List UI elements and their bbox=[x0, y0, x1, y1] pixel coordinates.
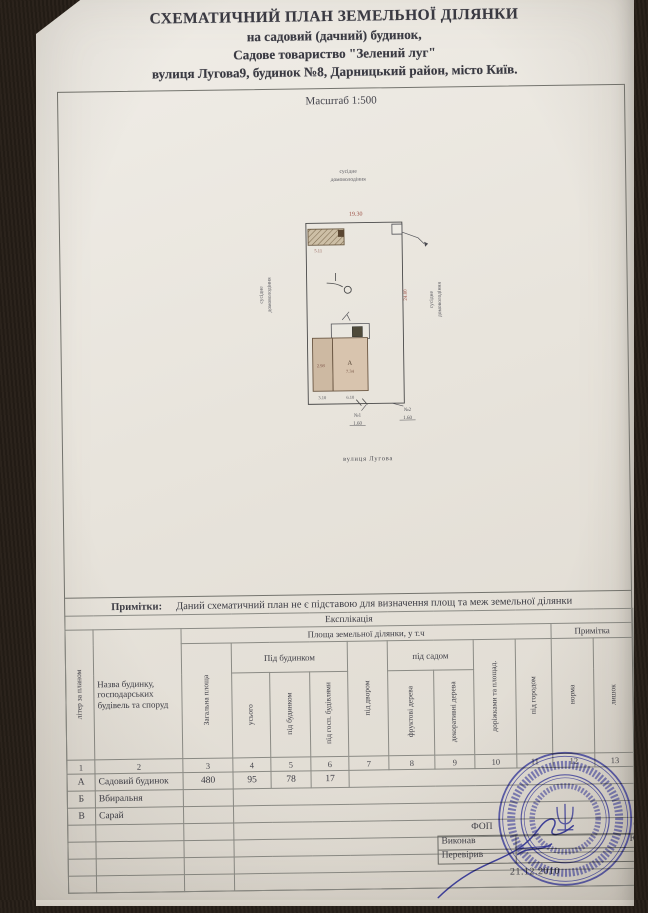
col-header-total-area: Загальна площа bbox=[181, 643, 233, 759]
row-total: 95 bbox=[233, 771, 271, 789]
gate1-leader bbox=[361, 405, 366, 411]
row-letter: В bbox=[67, 808, 95, 825]
col-number: 6 bbox=[311, 756, 349, 771]
well-connection-line bbox=[327, 273, 343, 287]
street-label: вулиця Лугова bbox=[343, 455, 393, 463]
group-header-note: Примітка bbox=[551, 622, 633, 638]
executed-name: Ю.В. bbox=[516, 834, 648, 849]
fop-name-fragment: О.В. bbox=[633, 820, 648, 832]
scanned-paper: СХЕМАТИЧНИЙ ПЛАН ЗЕМЕЛЬНОЇ ДІЛЯНКИ на са… bbox=[36, 0, 634, 906]
row-name: Сарай bbox=[95, 807, 183, 825]
neighbor-label-right-1: сусідне bbox=[429, 290, 435, 308]
gate-marks bbox=[356, 399, 367, 406]
toilet-building bbox=[392, 224, 402, 234]
col-number: 11 bbox=[517, 753, 553, 768]
row-under-house: 78 bbox=[271, 771, 311, 789]
plan-frame: Масштаб 1:500 сусідне домоволодіння 19.3… bbox=[57, 84, 636, 894]
col-number: 9 bbox=[435, 755, 475, 770]
col-header-surplus: лишок bbox=[593, 637, 635, 753]
date-stamp: 21.12.2010 bbox=[510, 865, 648, 878]
col-header-under-house: під будинком bbox=[270, 672, 311, 758]
fop-fragment: ФОП bbox=[471, 822, 493, 834]
row-letter: А bbox=[67, 774, 95, 791]
neighbor-label-top-2: домоволодіння bbox=[331, 177, 367, 183]
house-dimension: 7.34 bbox=[346, 369, 355, 374]
porch-mark bbox=[342, 312, 350, 321]
shed-dimension: 5.11 bbox=[314, 248, 322, 253]
house-letter: А bbox=[347, 360, 352, 367]
neighbor-label-right-2: домоволодіння bbox=[437, 282, 443, 318]
col-header-total: усього bbox=[232, 672, 271, 758]
row-total-area bbox=[183, 806, 233, 824]
row-total-area bbox=[183, 789, 233, 807]
porch bbox=[331, 324, 369, 340]
gate1-number: №1 bbox=[354, 413, 362, 419]
porch-dark-block bbox=[352, 327, 362, 337]
col-header-under-outbuildings: під госп. будівлями bbox=[310, 671, 349, 757]
row-under-outbuildings: 17 bbox=[311, 770, 349, 788]
site-plan-drawing: сусідне домоволодіння 19.30 5.11 2.98 А bbox=[58, 85, 631, 598]
neighbor-label-left-2: домоволодіння bbox=[267, 277, 273, 313]
col-header-norm: норма bbox=[551, 638, 595, 754]
col-number: 7 bbox=[349, 756, 389, 771]
row-name: Вбиральня bbox=[95, 790, 183, 808]
gate2-number: №2 bbox=[404, 407, 412, 413]
col-number: 12 bbox=[553, 753, 595, 768]
signature-table: Виконав Ю.В. Перевірив bbox=[437, 833, 648, 865]
col-number: 1 bbox=[67, 760, 95, 774]
col-header-yard: під двором bbox=[347, 641, 389, 757]
leader-line bbox=[402, 232, 424, 244]
well-symbol bbox=[344, 286, 351, 293]
col-header-name: Назва будинку, господарських будівель та… bbox=[93, 629, 183, 760]
notes-label: Примітки: bbox=[111, 601, 162, 613]
leader-mark bbox=[424, 242, 428, 247]
title-block: СХЕМАТИЧНИЙ ПЛАН ЗЕМЕЛЬНОЇ ДІЛЯНКИ на са… bbox=[40, 4, 629, 84]
annex-dimension: 2.98 bbox=[317, 363, 326, 368]
group-header-under-garden: під садом bbox=[387, 640, 473, 671]
col-number: 10 bbox=[475, 754, 517, 769]
checked-label: Перевірив bbox=[439, 850, 517, 864]
col-number: 8 bbox=[389, 755, 435, 770]
col-header-letter: літер за планом bbox=[65, 630, 95, 760]
neighbor-label-left-1: сусідне bbox=[259, 286, 265, 304]
neighbor-label-top-1: сусідне bbox=[339, 169, 357, 175]
row-name: Садовий будинок bbox=[95, 773, 183, 791]
bottom-dimension-2: 6.10 bbox=[346, 395, 355, 400]
document-content: СХЕМАТИЧНИЙ ПЛАН ЗЕМЕЛЬНОЇ ДІЛЯНКИ на са… bbox=[30, 0, 641, 910]
bottom-dimension-1: 3.10 bbox=[318, 395, 327, 400]
checked-name bbox=[517, 848, 648, 863]
col-header-decorative-trees: декоративні дерева bbox=[434, 670, 475, 756]
plot-width-dimension: 19.30 bbox=[349, 212, 363, 218]
col-number: 4 bbox=[233, 757, 271, 772]
signature-block: ФОП О.В. Виконав Ю.В. Перевірив 21.12.20… bbox=[437, 820, 648, 879]
col-header-paths: доріжками та площад. bbox=[473, 639, 517, 755]
col-number: 2 bbox=[95, 759, 183, 774]
plot-depth-dimension: 24.80 bbox=[404, 289, 409, 301]
row-total-area: 480 bbox=[183, 772, 233, 790]
executed-label: Виконав bbox=[438, 836, 516, 850]
col-number: 5 bbox=[271, 757, 311, 772]
shed-detail bbox=[338, 230, 344, 237]
col-header-vegetable-garden: під городом bbox=[515, 639, 553, 754]
col-number: 13 bbox=[595, 752, 635, 767]
col-number: 3 bbox=[183, 758, 233, 773]
col-header-fruit-trees: фруктові дерева bbox=[388, 670, 435, 756]
checked-row: Перевірив bbox=[439, 847, 648, 864]
group-header-under-building: Під будинком bbox=[231, 641, 347, 673]
row-letter: Б bbox=[67, 791, 95, 808]
